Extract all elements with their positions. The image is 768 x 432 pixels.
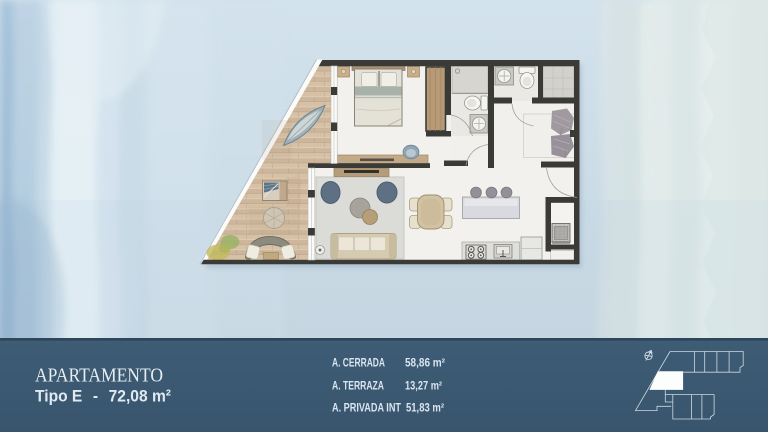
svg-text:51,83 m²: 51,83 m²	[406, 403, 444, 415]
svg-text:A. TERRAZA: A. TERRAZA	[332, 381, 384, 393]
svg-text:A. PRIVADA INT: A. PRIVADA INT	[332, 403, 401, 415]
svg-text:APARTAMENTO: APARTAMENTO	[35, 366, 163, 387]
svg-text:Tipo E - 72,08 m²: Tipo E - 72,08 m²	[35, 387, 171, 406]
svg-text:13,27 m²: 13,27 m²	[405, 381, 442, 393]
svg-text:58,86 m²: 58,86 m²	[405, 358, 445, 370]
svg-text:A. CERRADA: A. CERRADA	[332, 358, 385, 370]
